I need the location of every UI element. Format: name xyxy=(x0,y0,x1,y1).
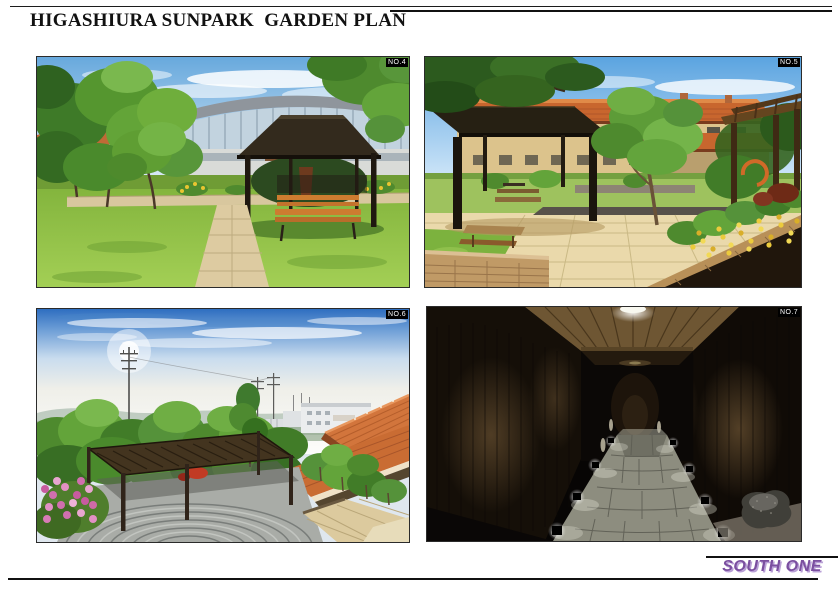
rendering-figure-no6: NO.6 xyxy=(36,308,410,543)
south-one-logo: SOUTH ONE xyxy=(704,558,840,576)
garden-plan-sheet: HIGASHIURA SUNPARK GARDEN PLAN xyxy=(0,0,840,596)
footer-rule xyxy=(8,578,818,580)
figure-badge-no6: NO.6 xyxy=(386,310,408,319)
rendering-figure-no4: NO.4 xyxy=(36,56,410,288)
no6-overlook-illustration xyxy=(37,309,409,542)
no7-night-corridor-illustration xyxy=(427,307,801,541)
header-right-rule xyxy=(390,10,832,12)
page-title: HIGASHIURA SUNPARK GARDEN PLAN xyxy=(8,10,390,35)
rendering-figure-no7: NO.7 xyxy=(426,306,802,542)
header-top-rule xyxy=(10,6,832,7)
figure-badge-no4: NO.4 xyxy=(386,58,408,67)
figure-badge-no7: NO.7 xyxy=(778,308,800,317)
no4-garden-gazebo-illustration xyxy=(37,57,409,287)
rendering-figure-no5: NO.5 xyxy=(424,56,802,288)
no5-courtyard-illustration xyxy=(425,57,801,287)
figure-badge-no5: NO.5 xyxy=(778,58,800,67)
